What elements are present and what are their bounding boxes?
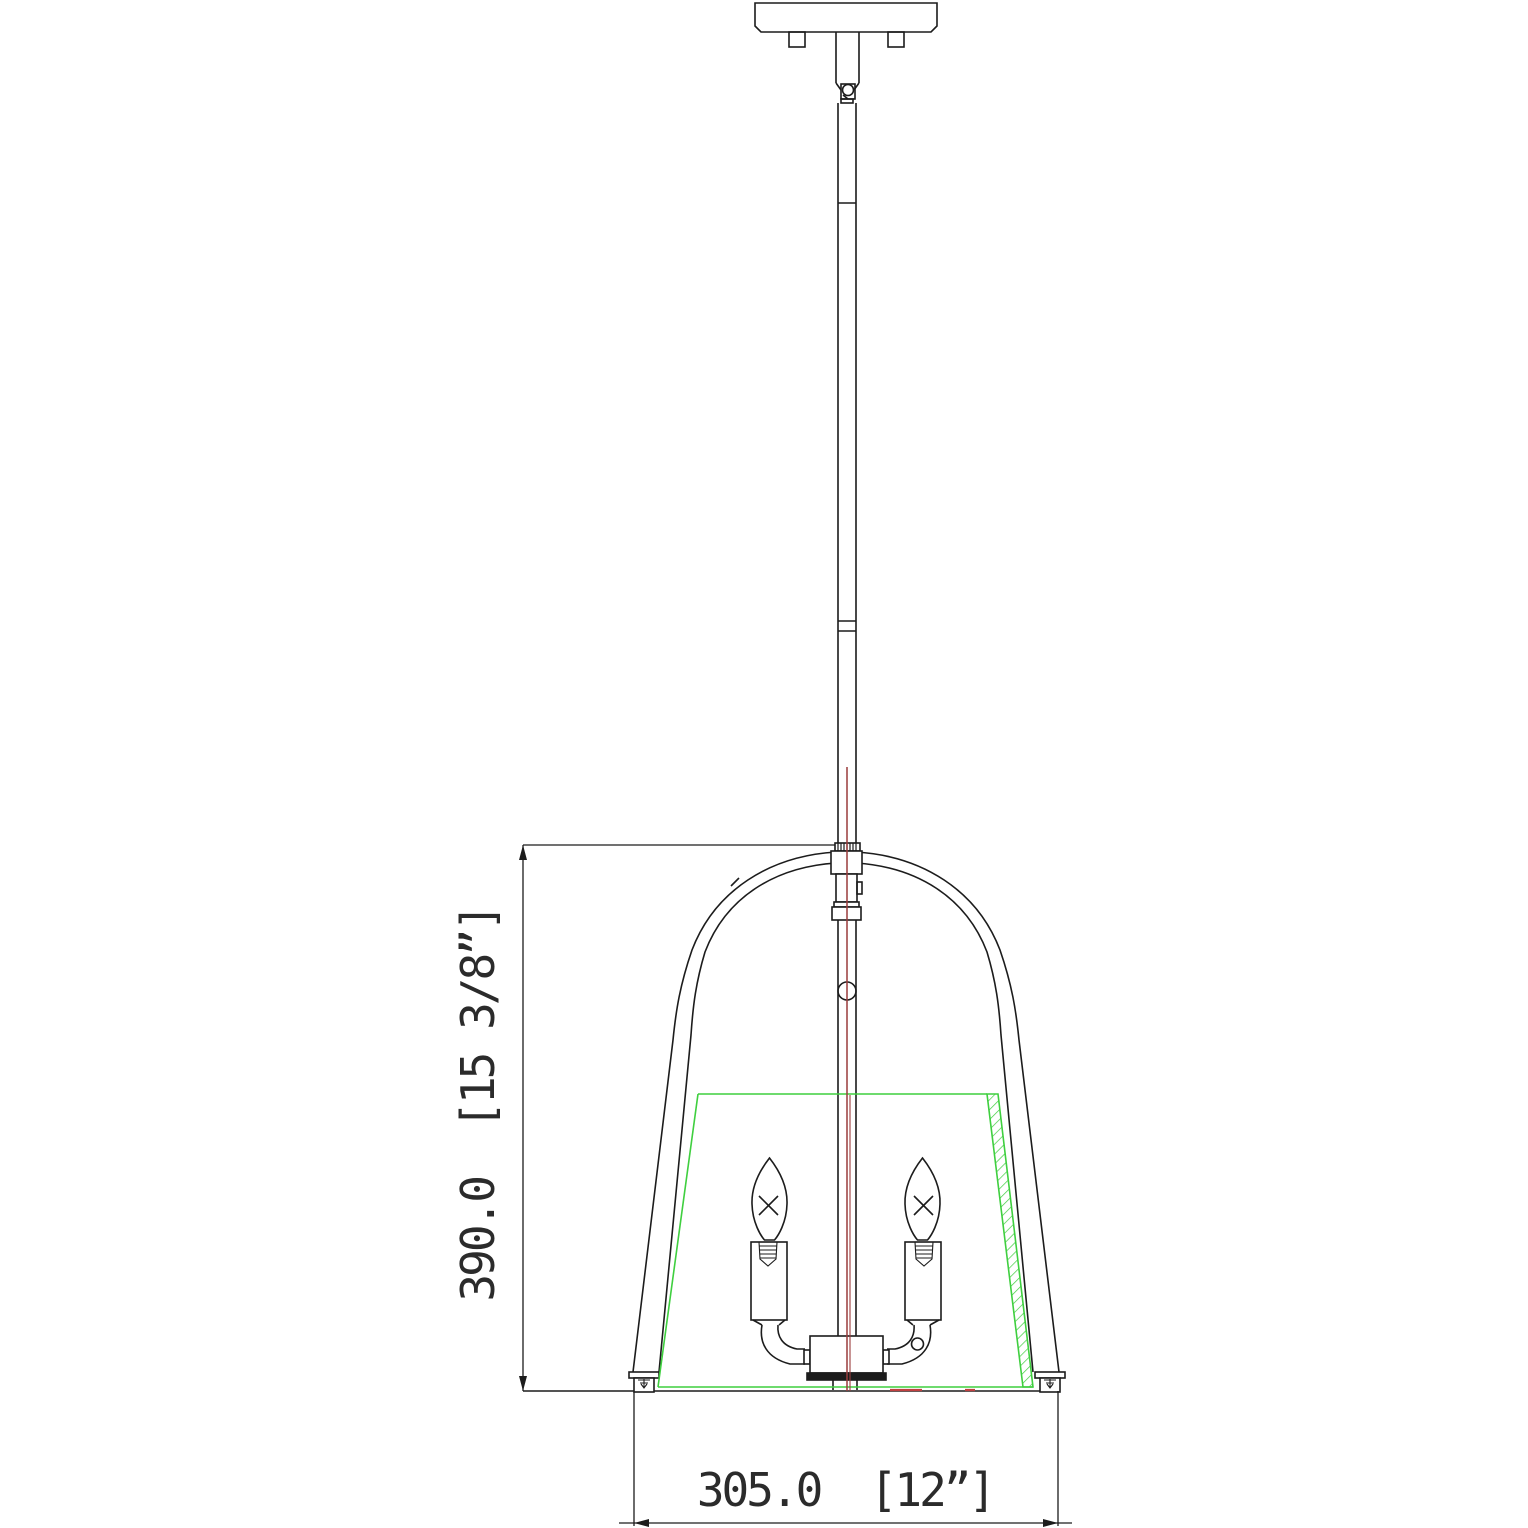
fixture-linework: [519, 3, 1072, 1527]
bulb-left: [752, 1158, 787, 1240]
bulb-right: [905, 1158, 940, 1240]
bulb-right-x: [914, 1196, 933, 1215]
frame-left-outer: [633, 852, 836, 1372]
rod-joint-2: [838, 621, 856, 631]
candle-left: [751, 1158, 805, 1364]
frame-left-inner: [659, 863, 836, 1372]
arm-right-screw: [912, 1338, 924, 1350]
canopy-tab-right: [888, 32, 904, 47]
dimension-height-label: 390.0 [15 3/8”]: [452, 831, 504, 1377]
hub-finial-stem: [833, 1380, 857, 1390]
swivel-joint: [841, 84, 855, 103]
dimension-width-label: 305.0 [12”]: [633, 1464, 1057, 1516]
arm-left-outer: [761, 1325, 805, 1364]
frame-right-outer: [856, 852, 1059, 1372]
frame-weld-tick: [731, 878, 739, 886]
technical-drawing-canvas: 390.0 [15 3/8”] 305.0 [12”]: [0, 0, 1528, 1528]
pendant-fixture-drawing: [0, 0, 1528, 1528]
arm-left-inner: [778, 1325, 805, 1349]
frame-foot-left: [629, 1372, 659, 1392]
hub-set-screw: [857, 882, 862, 894]
bulb-left-x: [759, 1196, 778, 1215]
hub-nub-left: [804, 1350, 810, 1364]
hub-nub-right: [883, 1350, 889, 1364]
candle-right: [887, 1158, 941, 1364]
shade-left-edge: [658, 1094, 698, 1387]
arm-right-inner: [887, 1325, 914, 1349]
frame-foot-right: [1035, 1372, 1065, 1392]
canopy-tab-left: [789, 32, 805, 47]
ceiling-canopy: [755, 3, 937, 90]
frame-right-inner: [856, 863, 1033, 1372]
